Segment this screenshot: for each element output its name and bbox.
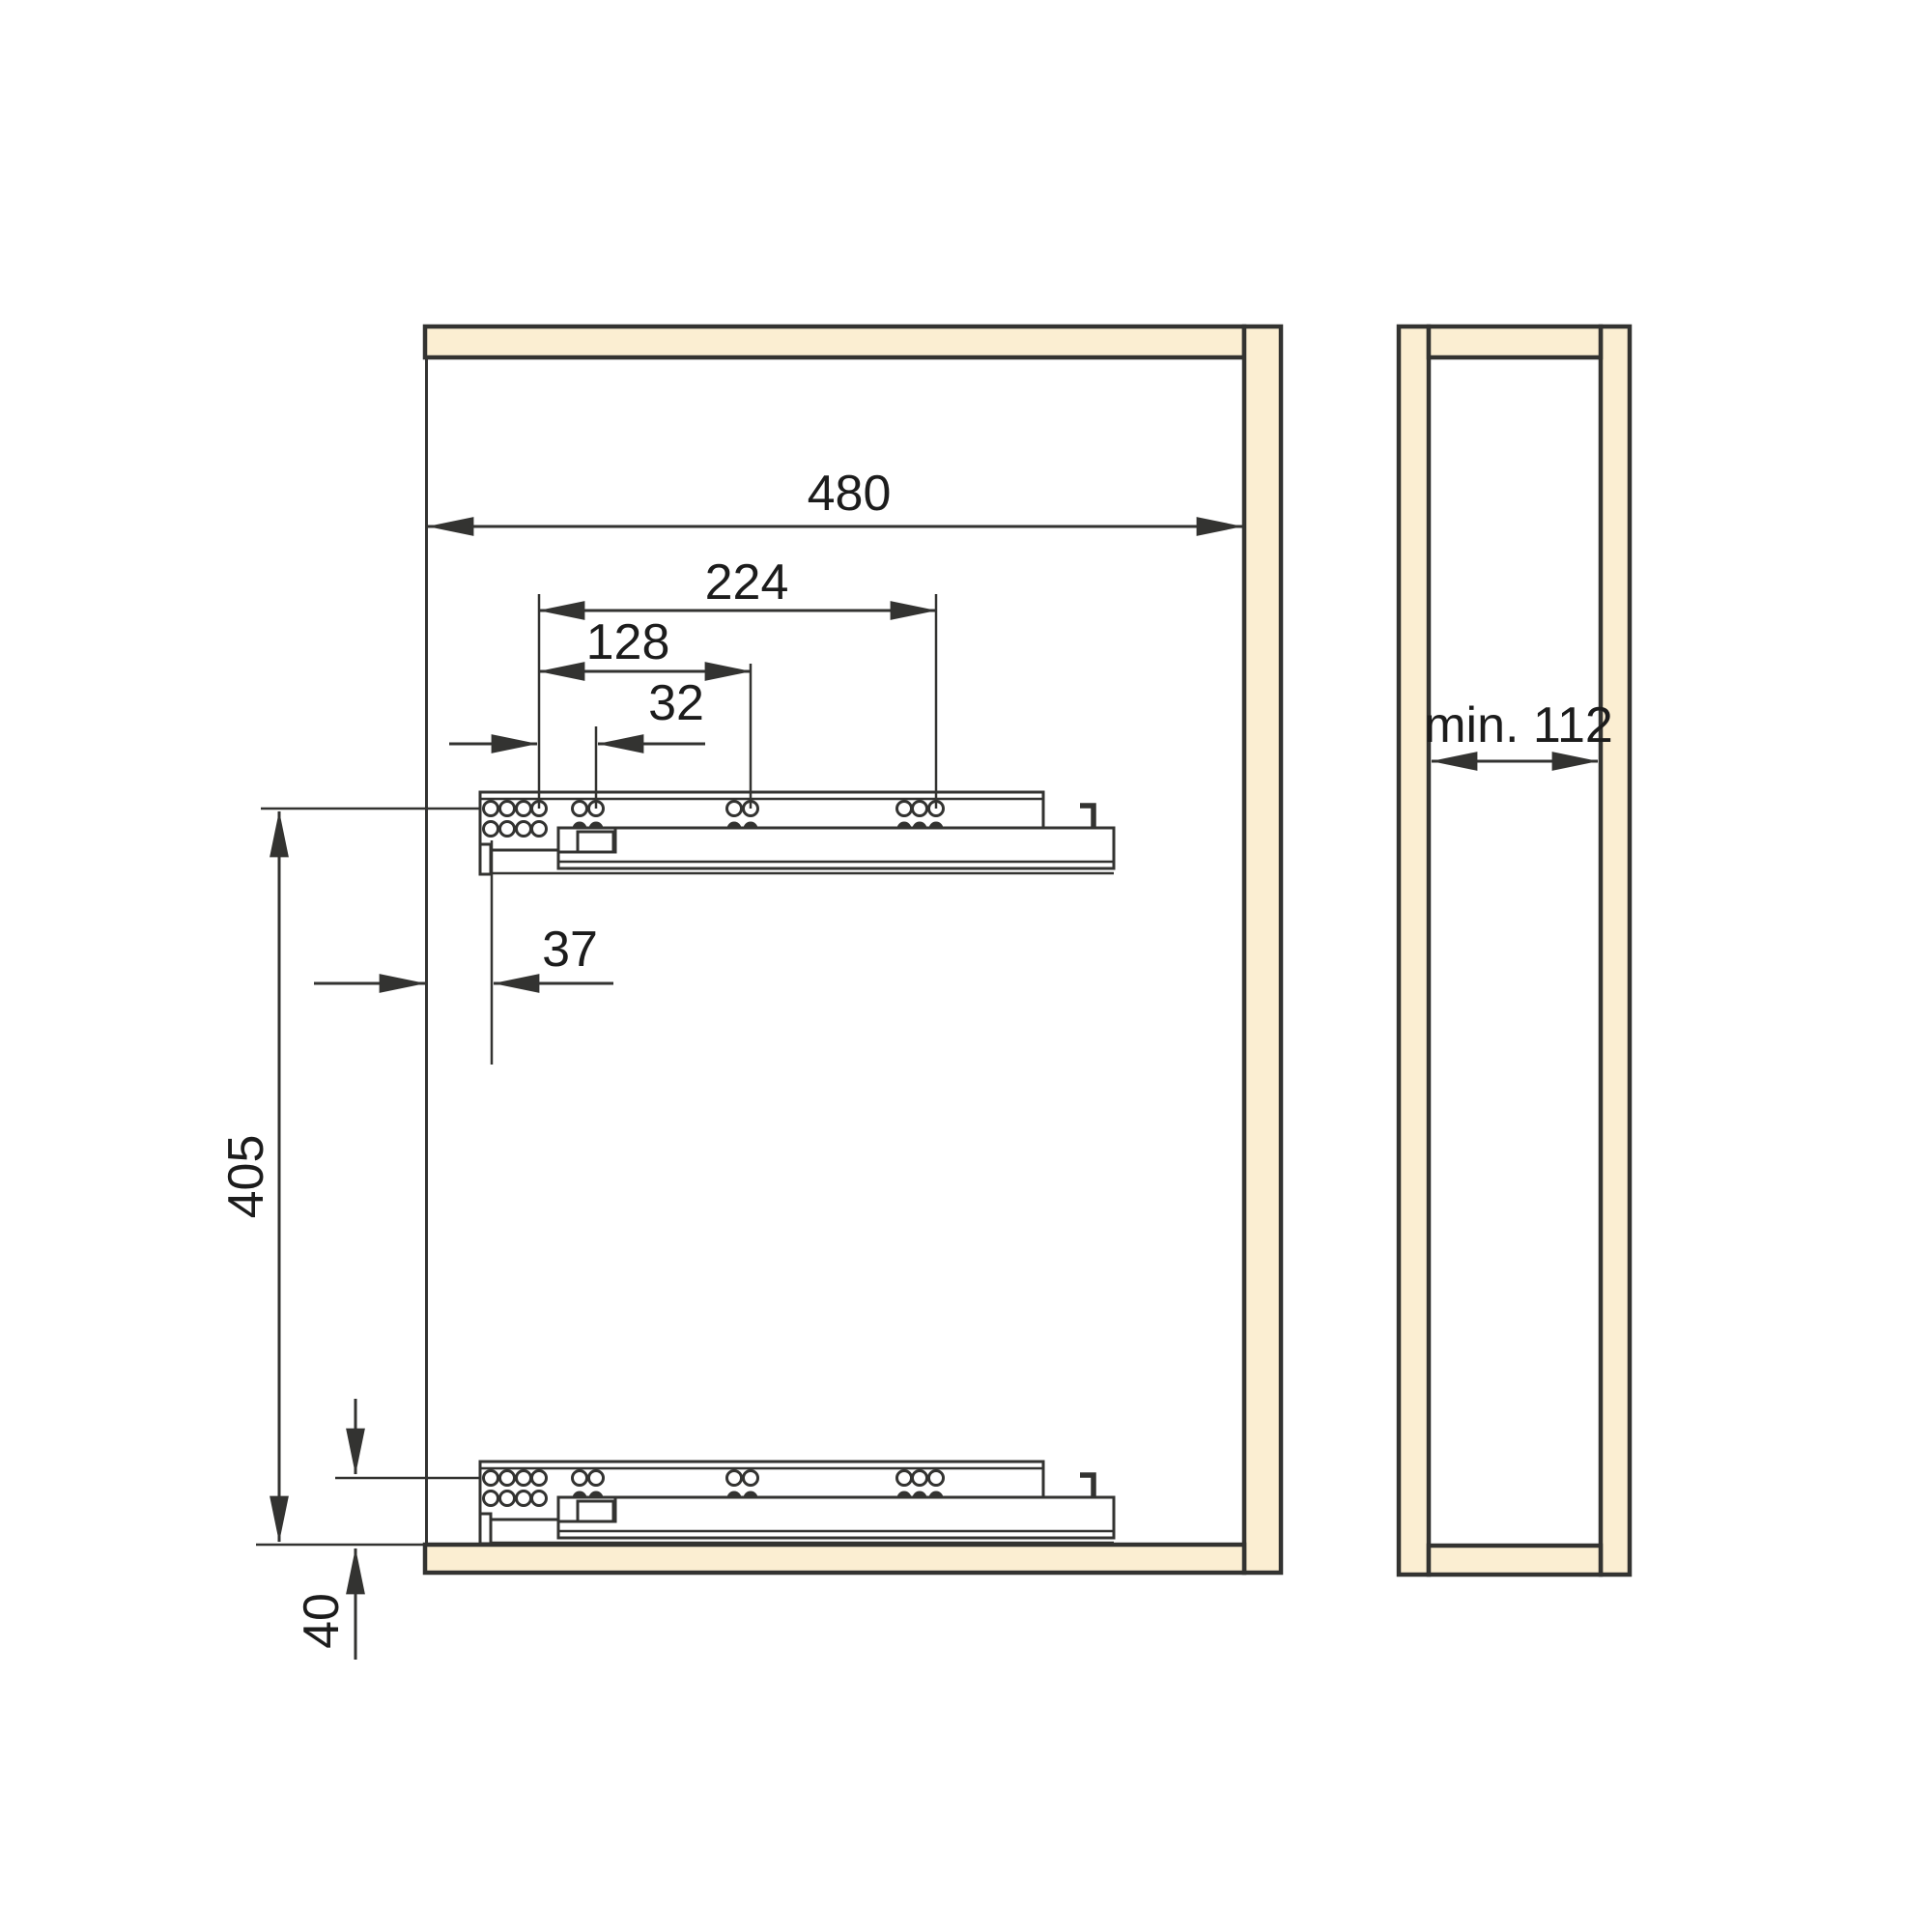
front-right-panel bbox=[1244, 327, 1281, 1573]
drawer-runner-top bbox=[480, 792, 1114, 874]
dim-label-40: 40 bbox=[294, 1593, 350, 1649]
dim-label-128: 128 bbox=[586, 614, 670, 670]
side-left-panel bbox=[1399, 327, 1429, 1575]
side-bottom-panel bbox=[1429, 1546, 1601, 1575]
extension-lines bbox=[256, 594, 936, 1545]
dim-side-min-112: min. 112 bbox=[1424, 697, 1613, 761]
side-top-panel bbox=[1429, 327, 1601, 357]
dim-span-128: 128 bbox=[539, 614, 751, 671]
dim-span-224: 224 bbox=[539, 554, 936, 611]
dim-label-min-112: min. 112 bbox=[1424, 697, 1613, 753]
dim-runner-spacing-405: 405 bbox=[218, 811, 279, 1542]
front-top-panel bbox=[425, 327, 1244, 357]
dim-label-224: 224 bbox=[705, 554, 789, 611]
side-right-panel bbox=[1601, 327, 1630, 1575]
drawer-runner-bottom bbox=[480, 1462, 1114, 1544]
dim-front-offset-37: 37 bbox=[314, 922, 613, 983]
drawing-svg: 480 224 128 32 37 405 40 min. 112 bbox=[0, 0, 1932, 1932]
side-view bbox=[1399, 327, 1630, 1575]
dim-overall-480: 480 bbox=[428, 466, 1242, 526]
dim-label-405: 405 bbox=[218, 1135, 274, 1219]
dim-pitch-32: 32 bbox=[449, 675, 705, 744]
front-bottom-panel bbox=[425, 1545, 1244, 1573]
technical-drawing-canvas: 480 224 128 32 37 405 40 min. 112 bbox=[0, 0, 1932, 1932]
dim-label-480: 480 bbox=[808, 466, 892, 522]
dim-label-37: 37 bbox=[542, 922, 598, 978]
dim-label-32: 32 bbox=[648, 675, 704, 731]
dim-bottom-offset-40: 40 bbox=[294, 1399, 355, 1660]
